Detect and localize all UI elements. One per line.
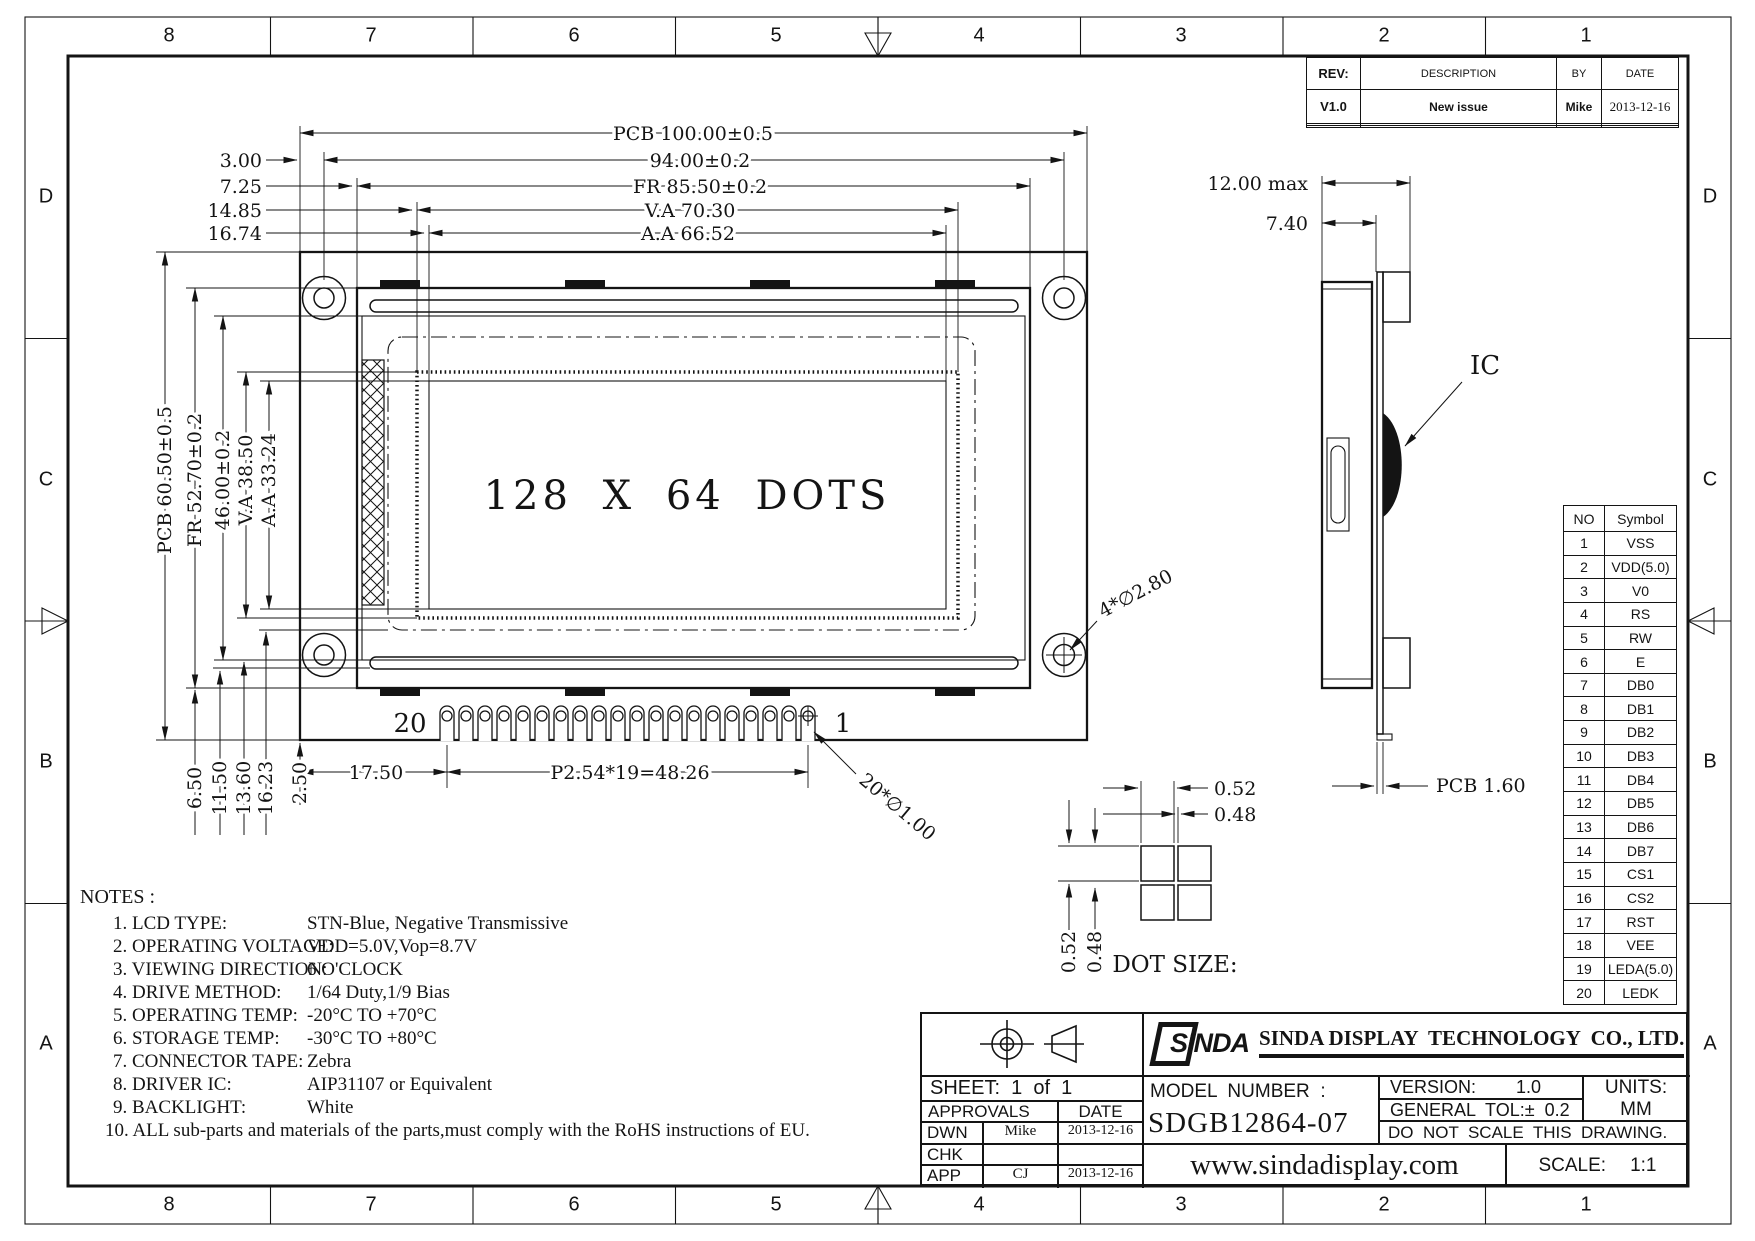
note-value: AIP31107 or Equivalent: [307, 1073, 920, 1096]
projection-symbol: [922, 1014, 1144, 1077]
pcb-side: [1377, 272, 1383, 734]
revision-row: [1307, 126, 1679, 128]
model-number-cell: MODEL NUMBER : SDGB12864-07: [1144, 1077, 1380, 1145]
dim-label: 17.50: [349, 762, 403, 784]
dim-label: A.A 66.52: [640, 223, 735, 245]
note-item: 5. OPERATING TEMP:-20°C TO +70°C: [80, 1004, 920, 1027]
pin-hole: [613, 711, 623, 721]
date-header-label: DATE: [1059, 1102, 1142, 1121]
revision-cell: [1307, 126, 1361, 128]
note-label: 1. LCD TYPE:: [80, 912, 307, 935]
note-label: 4. DRIVE METHOD:: [80, 981, 307, 1004]
zone-row-label: C: [39, 469, 53, 492]
pin-table-cell: CS2: [1605, 886, 1677, 910]
note-item: 10. ALL sub-parts and materials of the p…: [80, 1119, 920, 1142]
note-label: 9. BACKLIGHT:: [80, 1096, 307, 1119]
no-scale-note: DO NOT SCALE THIS DRAWING.: [1380, 1122, 1688, 1145]
revision-header-cell: REV:: [1307, 58, 1361, 90]
note-item: 7. CONNECTOR TAPE:Zebra: [80, 1050, 920, 1073]
revision-header-cell: BY: [1557, 58, 1602, 90]
zone-row-label: D: [1703, 186, 1717, 209]
zone-col-label: 4: [973, 25, 984, 48]
note-label: 5. OPERATING TEMP:: [80, 1004, 307, 1027]
pin-hole: [632, 711, 642, 721]
dim-label: PCB 100.00±0.5: [613, 123, 773, 145]
model-number-label: MODEL NUMBER :: [1144, 1077, 1378, 1103]
dim-label: 14.85: [208, 200, 262, 222]
dim-label: PCB 1.60: [1436, 775, 1526, 797]
pin-table-cell: 9: [1564, 721, 1605, 745]
ic-bump: [1383, 413, 1402, 517]
zone-col-label: 7: [365, 25, 376, 48]
version-label: VERSION:: [1390, 1077, 1476, 1098]
pin-table-row: 9DB2: [1564, 721, 1677, 745]
zone-col-label: 7: [365, 1194, 376, 1217]
pin-table-header-symbol: Symbol: [1605, 506, 1677, 532]
pin-hole: [670, 711, 680, 721]
version-cell: VERSION: 1.0: [1380, 1077, 1584, 1100]
revision-cell: New issue: [1361, 90, 1557, 124]
scale-value: 1:1: [1630, 1155, 1656, 1177]
dim-label: A.A 33.24: [258, 433, 280, 528]
pin-table-row: 10DB3: [1564, 744, 1677, 768]
pin-table-row: 2VDD(5.0): [1564, 555, 1677, 579]
pin-hole-label: 20*∅1.00: [855, 769, 940, 845]
sign-date: 2013-12-16: [1059, 1166, 1142, 1188]
pin-table-cell: 8: [1564, 697, 1605, 721]
pin-hole: [556, 711, 566, 721]
notes-section: NOTES : 1. LCD TYPE:STN-Blue, Negative T…: [80, 886, 920, 1142]
note-value: 1/64 Duty,1/9 Bias: [307, 981, 920, 1004]
revision-header-cell: DESCRIPTION: [1361, 58, 1557, 90]
zone-col-label: 3: [1175, 1194, 1186, 1217]
pin-hole: [746, 711, 756, 721]
pin-table-row: 3V0: [1564, 579, 1677, 603]
note-item: 1. LCD TYPE:STN-Blue, Negative Transmiss…: [80, 912, 920, 935]
elastomer-outline: [1327, 438, 1349, 531]
note-value: VDD=5.0V,Vop=8.7V: [307, 935, 920, 958]
pin-table-row: 5RW: [1564, 626, 1677, 650]
elastomer-core: [1331, 446, 1345, 523]
pin-table-cell: 15: [1564, 862, 1605, 886]
sign-row-chk: CHK: [922, 1145, 1144, 1166]
revision-row: V1.0New issueMike2013-12-16: [1307, 90, 1679, 124]
connector-tab: [1383, 638, 1410, 688]
dim-label: 11.50: [209, 761, 231, 815]
note-label: 8. DRIVER IC:: [80, 1073, 307, 1096]
website: www.sindadisplay.com: [1144, 1145, 1507, 1186]
zone-row-label: A: [1703, 1033, 1716, 1056]
pin-table-cell: DB4: [1605, 768, 1677, 792]
pin-hole: [461, 711, 471, 721]
sign-row-dwn: DWNMike2013-12-16: [922, 1123, 1144, 1145]
pin-table-row: 8DB1: [1564, 697, 1677, 721]
pin-table-row: 7DB0: [1564, 673, 1677, 697]
revision-cell: 2013-12-16: [1602, 90, 1679, 124]
zone-row-label: A: [39, 1033, 52, 1056]
revision-table: REV:DESCRIPTIONBYDATEV1.0New issueMike20…: [1306, 57, 1678, 128]
sign-date: 2013-12-16: [1059, 1123, 1142, 1143]
pin-hole: [651, 711, 661, 721]
pin-table-cell: VEE: [1605, 933, 1677, 957]
pin-table-cell: 10: [1564, 744, 1605, 768]
dim-label: V.A 70.30: [644, 200, 736, 222]
zone-col-label: 2: [1378, 25, 1389, 48]
pin-table-row: 20LEDK: [1564, 981, 1677, 1005]
pin-table-row: 19LEDA(5.0): [1564, 957, 1677, 981]
dim-label: FR 85.50±0.2: [633, 176, 767, 198]
dim-label: 6.50: [184, 767, 206, 809]
pin-table-row: 11DB4: [1564, 768, 1677, 792]
dim-label: 12.00 max: [1208, 173, 1309, 195]
note-item: 8. DRIVER IC:AIP31107 or Equivalent: [80, 1073, 920, 1096]
pin-table-cell: 11: [1564, 768, 1605, 792]
dim-label: 46.00±0.2: [212, 430, 234, 531]
zone-col-label: 4: [973, 1194, 984, 1217]
revision-cell: [1602, 126, 1679, 128]
note-item: 4. DRIVE METHOD:1/64 Duty,1/9 Bias: [80, 981, 920, 1004]
pin-symbol-table: NO Symbol 1VSS2VDD(5.0)3V04RS5RW6E7DB08D…: [1563, 505, 1676, 1005]
version-value: 1.0: [1516, 1077, 1541, 1098]
dim-label: 16.23: [255, 761, 277, 815]
note-item: 9. BACKLIGHT:White: [80, 1096, 920, 1119]
pin-table-row: 17RST: [1564, 910, 1677, 934]
pin-20-label: 20: [393, 709, 426, 739]
note-label: 2. OPERATING VOLTAGE:: [80, 935, 307, 958]
mount-hole-label: 4*∅2.80: [1095, 565, 1176, 622]
dim-label: P2.54*19=48.26: [550, 762, 709, 784]
pin-table-row: 18VEE: [1564, 933, 1677, 957]
note-label: 7. CONNECTOR TAPE:: [80, 1050, 307, 1073]
pin-table-cell: 4: [1564, 602, 1605, 626]
notes-title: NOTES :: [80, 886, 920, 912]
pin-hole: [499, 711, 509, 721]
pin-table-cell: DB7: [1605, 839, 1677, 863]
pin-table-cell: 2: [1564, 555, 1605, 579]
pin-table-cell: VSS: [1605, 532, 1677, 556]
pin-table-cell: E: [1605, 650, 1677, 674]
pcb-foot: [1377, 734, 1392, 740]
dim-label: 0.48: [1084, 931, 1106, 973]
zone-col-label: 5: [770, 1194, 781, 1217]
pin-hole: [537, 711, 547, 721]
pin-table-row: 12DB5: [1564, 792, 1677, 816]
pin-hole: [784, 711, 794, 721]
zone-col-label: 8: [163, 25, 174, 48]
zone-row-label: B: [39, 751, 52, 774]
pin-hole: [708, 711, 718, 721]
dim-label: 94.00±0.2: [650, 150, 751, 172]
ic-label: IC: [1470, 351, 1500, 381]
revision-cell: [1557, 126, 1602, 128]
pin-table-header-no: NO: [1564, 506, 1605, 532]
pin-table-cell: 18: [1564, 933, 1605, 957]
sign-role: APP: [922, 1166, 984, 1188]
scale-label: SCALE:: [1538, 1155, 1606, 1177]
pin-table-cell: DB6: [1605, 815, 1677, 839]
pin-hole: [594, 711, 604, 721]
pin-1-label: 1: [835, 709, 852, 739]
sign-name: [984, 1145, 1059, 1164]
pin-table-cell: 16: [1564, 886, 1605, 910]
pin-table-row: 1VSS: [1564, 532, 1677, 556]
zone-row-label: C: [1703, 469, 1717, 492]
pin-hole: [480, 711, 490, 721]
dim-label: 0.52: [1058, 931, 1080, 973]
dim-label: 0.48: [1214, 804, 1256, 826]
zone-row-label: B: [1703, 751, 1716, 774]
note-label: 3. VIEWING DIRECTION:: [80, 958, 307, 981]
company-header: SINDA SINDA DISPLAY TECHNOLOGY CO., LTD.: [1144, 1014, 1690, 1077]
pin-hole: [575, 711, 585, 721]
pin-hole: [518, 711, 528, 721]
sign-date: [1059, 1145, 1142, 1164]
zone-row-label: D: [39, 186, 53, 209]
pin-table-cell: 19: [1564, 957, 1605, 981]
zone-col-label: 3: [1175, 25, 1186, 48]
dot-size-detail: 0.52 0.48 0.52 0.48 DOT SIZE:: [1058, 778, 1256, 978]
dim-label: V.A 38.50: [235, 435, 257, 527]
dim-label: 13.60: [233, 761, 255, 815]
dim-label: 7.25: [220, 176, 262, 198]
pin-table-cell: 20: [1564, 981, 1605, 1005]
note-item: 6. STORAGE TEMP:-30°C TO +80°C: [80, 1027, 920, 1050]
pin-table-cell: LEDA(5.0): [1605, 957, 1677, 981]
title-block: SHEET: 1 of 1 APPROVALS DATE DWNMike2013…: [920, 1012, 1688, 1186]
sign-role: DWN: [922, 1123, 984, 1143]
revision-cell: Mike: [1557, 90, 1602, 124]
note-value: Zebra: [307, 1050, 920, 1073]
pin-table-cell: DB2: [1605, 721, 1677, 745]
pin-table-cell: 17: [1564, 910, 1605, 934]
pin-table-cell: DB5: [1605, 792, 1677, 816]
revision-header-cell: DATE: [1602, 58, 1679, 90]
pin-table-cell: LEDK: [1605, 981, 1677, 1005]
revision-header-row: REV:DESCRIPTIONBYDATE: [1307, 58, 1679, 90]
dim-label: 2.50: [289, 762, 311, 804]
scale-cell: SCALE: 1:1: [1507, 1145, 1688, 1186]
dim-label: PCB 60.50±0.5: [154, 406, 176, 554]
zone-col-label: 6: [568, 1194, 579, 1217]
dim-label: 0.52: [1214, 778, 1256, 800]
note-label: 6. STORAGE TEMP:: [80, 1027, 307, 1050]
sign-row-app: APPCJ2013-12-16: [922, 1166, 1144, 1188]
pin-table-cell: 5: [1564, 626, 1605, 650]
note-item: 3. VIEWING DIRECTION:6 O'CLOCK: [80, 958, 920, 981]
zone-col-label: 1: [1580, 1194, 1591, 1217]
approvals-header: APPROVALS DATE: [922, 1102, 1144, 1123]
dot-size-title: DOT SIZE:: [1112, 952, 1237, 978]
pin-table-cell: 14: [1564, 839, 1605, 863]
units-value: MM: [1620, 1099, 1652, 1121]
company-logo-icon: [1149, 1022, 1198, 1066]
sheet-number: SHEET: 1 of 1: [922, 1077, 1144, 1102]
note-value: -20°C TO +70°C: [307, 1004, 920, 1027]
pin-table-row: 4RS: [1564, 602, 1677, 626]
lcd-cell-outline: [1322, 282, 1372, 688]
note-value: -30°C TO +80°C: [307, 1027, 920, 1050]
pin-table-row: 6E: [1564, 650, 1677, 674]
side-view: 12.00 max 7.40 IC PCB 1.60: [1208, 173, 1526, 797]
bezel-slot: [370, 300, 1018, 312]
zone-col-label: 6: [568, 25, 579, 48]
connector-tab: [1383, 272, 1410, 322]
pin-table-cell: 12: [1564, 792, 1605, 816]
pin-hole: [727, 711, 737, 721]
bezel-slot: [370, 657, 1018, 669]
dim-label: 3.00: [220, 150, 262, 172]
dim-label: 16.74: [208, 223, 262, 245]
tolerance-cell: GENERAL TOL:± 0.2: [1380, 1100, 1584, 1122]
dim-label: 7.40: [1266, 213, 1308, 235]
note-value: STN-Blue, Negative Transmissive: [307, 912, 920, 935]
front-view: 128 X 64 DOTS: [300, 252, 1087, 741]
pin-table-row: 14DB7: [1564, 839, 1677, 863]
pin-table-cell: DB0: [1605, 673, 1677, 697]
drawing-sheet: 128 X 64 DOTS: [0, 0, 1755, 1241]
zone-col-label: 1: [1580, 25, 1591, 48]
sign-role: CHK: [922, 1145, 984, 1164]
units-cell: UNITS: MM: [1584, 1077, 1688, 1122]
note-item: 2. OPERATING VOLTAGE:VDD=5.0V,Vop=8.7V: [80, 935, 920, 958]
revision-cell: [1361, 126, 1557, 128]
pin-hole: [689, 711, 699, 721]
pin-table-row: 16CS2: [1564, 886, 1677, 910]
pin-table-cell: RST: [1605, 910, 1677, 934]
pin-table-row: 13DB6: [1564, 815, 1677, 839]
zone-col-label: 2: [1378, 1194, 1389, 1217]
model-number-value: SDGB12864-07: [1144, 1103, 1378, 1140]
sign-name: Mike: [984, 1123, 1059, 1143]
zone-col-label: 5: [770, 25, 781, 48]
pin-table-cell: VDD(5.0): [1605, 555, 1677, 579]
display-resolution-label: 128 X 64 DOTS: [484, 473, 891, 519]
pin-table-cell: RW: [1605, 626, 1677, 650]
note-value: White: [307, 1096, 920, 1119]
units-label: UNITS:: [1605, 1077, 1667, 1099]
pin-table-row: 15CS1: [1564, 862, 1677, 886]
dim-label: FR 52.70±0.2: [184, 413, 206, 547]
zone-col-label: 8: [163, 1194, 174, 1217]
pin-hole: [765, 711, 775, 721]
pin-table-cell: 6: [1564, 650, 1605, 674]
company-name: SINDA DISPLAY TECHNOLOGY CO., LTD.: [1259, 1026, 1684, 1058]
pin-table-cell: 7: [1564, 673, 1605, 697]
pin-table-cell: 1: [1564, 532, 1605, 556]
pin-table-cell: 3: [1564, 579, 1605, 603]
pin-header: [440, 706, 818, 741]
revision-cell: V1.0: [1307, 90, 1361, 124]
pin-table-cell: DB3: [1605, 744, 1677, 768]
pin-table-cell: CS1: [1605, 862, 1677, 886]
approvals-label: APPROVALS: [922, 1102, 1059, 1121]
pin-table-cell: V0: [1605, 579, 1677, 603]
note-value: 6 O'CLOCK: [307, 958, 920, 981]
pin-hole: [442, 711, 452, 721]
zebra-strip: [362, 360, 384, 605]
pin-table-cell: RS: [1605, 602, 1677, 626]
sign-name: CJ: [984, 1166, 1059, 1188]
pin-table-cell: DB1: [1605, 697, 1677, 721]
pin-table-cell: 13: [1564, 815, 1605, 839]
